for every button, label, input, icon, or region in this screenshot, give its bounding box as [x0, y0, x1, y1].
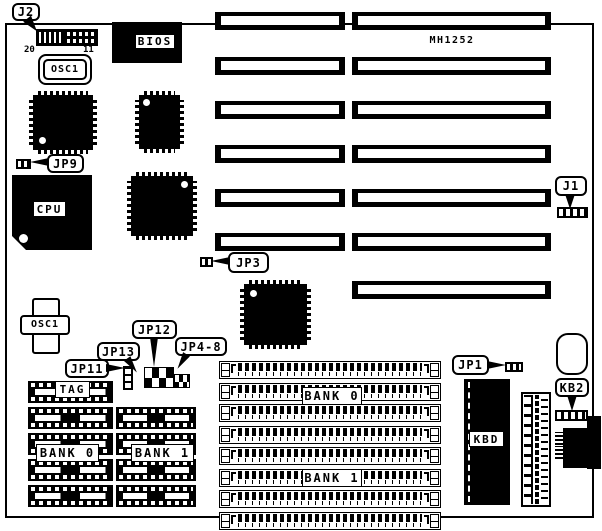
simm-socket-4: [219, 426, 441, 444]
callout-jp1-tail: [487, 361, 506, 369]
simm-socket-1: [219, 361, 441, 379]
kb2-connector: [555, 410, 588, 421]
callout-jp3-label: JP3: [236, 257, 261, 269]
qfp-chip-b: [135, 91, 184, 153]
simm-latch: [424, 493, 429, 502]
simm-latch: [424, 472, 429, 481]
callout-kb2-tail: [567, 395, 577, 411]
j2-header: [36, 29, 98, 46]
isa-slot-right-3: [352, 101, 551, 119]
jp4-8-jumper-block: [174, 374, 190, 388]
memory-chip-bank0-4: [28, 459, 113, 481]
pin-comb: [249, 345, 302, 349]
isa-slot-contact: [221, 237, 339, 246]
io-header-pins-left: [524, 395, 533, 504]
simm-end-clip: [221, 428, 230, 442]
simm-end-clip: [221, 406, 230, 420]
callout-j1: J1: [555, 176, 587, 196]
simm-end-clip: [430, 492, 439, 506]
simm-latch: [231, 515, 236, 524]
simm-latch: [231, 407, 236, 416]
callout-jp11-label: JP11: [71, 363, 104, 375]
callout-kb2-label: KB2: [560, 382, 585, 394]
isa-slot-right-1: [352, 12, 551, 30]
simm-socket-7: [219, 490, 441, 508]
isa-slot-right-7: [352, 281, 551, 299]
simm-latch: [424, 515, 429, 524]
simm-end-clip: [221, 385, 230, 399]
bank0-dip-label: BANK 0: [36, 444, 99, 462]
simm-socket-5: [219, 447, 441, 465]
io-header-pins-right: [541, 395, 548, 504]
isa-slot-right-4: [352, 145, 551, 163]
motherboard-diagram: MH1252 J2 20 11 BIOS OSC1 JP9: [0, 0, 602, 531]
callout-j1-tail: [565, 194, 575, 209]
callout-j1-label: J1: [563, 180, 579, 192]
callout-jp12-tail: [150, 337, 158, 367]
simm-latch: [231, 472, 236, 481]
callout-jp1: JP1: [452, 355, 489, 375]
simm-latch: [424, 450, 429, 459]
pin-comb: [180, 100, 184, 144]
bank1-dip-label: BANK 1: [131, 444, 194, 462]
callout-jp11-tail: [106, 364, 125, 372]
pin-comb: [93, 100, 97, 145]
pin1-dot: [19, 234, 28, 243]
isa-slot-left-1: [215, 12, 345, 30]
memory-chip-bank1-1: [116, 407, 196, 429]
simm-pins: [238, 428, 422, 442]
simm-end-clip: [221, 471, 230, 485]
simm-latch: [231, 364, 236, 373]
isa-slot-contact: [221, 193, 339, 202]
pin-comb: [240, 289, 244, 340]
oscillator-top: OSC1: [38, 54, 92, 85]
isa-slot-contact: [358, 105, 545, 114]
pin-comb: [38, 91, 88, 95]
simm-end-clip: [221, 449, 230, 463]
simm-socket-8: [219, 512, 441, 530]
simm-latch: [231, 386, 236, 395]
isa-slot-right-6: [352, 233, 551, 251]
simm-end-clip: [430, 471, 439, 485]
isa-slot-right-2: [352, 57, 551, 75]
memory-chip-bank0-2: [28, 407, 113, 429]
pin-comb: [144, 149, 175, 153]
bank1-simm-label: BANK 1: [302, 469, 362, 487]
jp1-jumper: [505, 362, 523, 372]
pin1-dot: [39, 137, 46, 144]
io-header-strip: [521, 392, 551, 507]
pin-comb: [136, 236, 188, 240]
isa-slot-left-4: [215, 145, 345, 163]
callout-jp11: JP11: [65, 359, 109, 378]
cpu-label: CPU: [33, 201, 66, 217]
pin-comb: [307, 289, 311, 340]
keyboard-din-connector-edge: [587, 416, 601, 469]
isa-slot-contact: [358, 237, 545, 246]
isa-slot-contact: [221, 16, 339, 25]
oscillator-top-label: OSC1: [43, 59, 87, 80]
isa-slot-left-2: [215, 57, 345, 75]
callout-jp12-label: JP12: [138, 324, 171, 336]
j2-pin20-label: 20: [24, 46, 35, 55]
simm-pins: [238, 449, 422, 463]
pin-comb: [249, 280, 302, 284]
isa-slot-contact: [358, 16, 545, 25]
tag-label: TAG: [55, 381, 90, 398]
callout-jp9: JP9: [47, 154, 84, 173]
isa-slot-contact: [221, 61, 339, 70]
board-model: MH1252: [420, 35, 484, 46]
jp12-13-jumper-block: [144, 367, 174, 388]
simm-latch: [424, 429, 429, 438]
simm-latch: [424, 364, 429, 373]
simm-pins: [238, 406, 422, 420]
isa-slot-contact: [358, 285, 545, 294]
pin-comb: [136, 172, 188, 176]
simm-pins: [238, 492, 422, 506]
pin-comb: [29, 100, 33, 145]
callout-jp3: JP3: [228, 252, 269, 273]
simm-end-clip: [430, 449, 439, 463]
bank0-simm-label: BANK 0: [302, 387, 362, 405]
pin-comb: [144, 91, 175, 95]
isa-slot-left-5: [215, 189, 345, 207]
simm-pins: [238, 514, 422, 528]
oscillator-bottom-label: OSC1: [20, 315, 70, 335]
simm-end-clip: [430, 363, 439, 377]
simm-pins: [238, 363, 422, 377]
simm-end-clip: [221, 363, 230, 377]
isa-slot-contact: [221, 149, 339, 158]
simm-end-clip: [430, 428, 439, 442]
simm-end-clip: [430, 385, 439, 399]
simm-end-clip: [430, 514, 439, 528]
isa-slot-right-5: [352, 189, 551, 207]
simm-end-clip: [430, 406, 439, 420]
pin-comb: [193, 181, 197, 231]
isa-slot-contact: [358, 61, 545, 70]
memory-chip-bank1-3: [116, 459, 196, 481]
din-pin-tab: [555, 446, 564, 459]
pin1-dot: [143, 99, 150, 106]
kbd-label: KBD: [469, 431, 504, 447]
isa-slot-left-3: [215, 101, 345, 119]
pin1-dot: [250, 290, 257, 297]
bios-label: BIOS: [135, 34, 175, 49]
isa-slot-contact: [358, 149, 545, 158]
qfp-chip-d: [240, 280, 311, 349]
simm-latch: [231, 450, 236, 459]
callout-jp4-8-label: JP4-8: [180, 341, 221, 353]
din-pin-tab: [555, 432, 564, 445]
isa-slot-contact: [358, 193, 545, 202]
callout-jp9-label: JP9: [53, 158, 78, 170]
isa-slot-left-6: [215, 233, 345, 251]
simm-latch: [424, 386, 429, 395]
io-header-divider: [535, 395, 539, 504]
simm-latch: [424, 407, 429, 416]
battery: [556, 333, 588, 375]
memory-chip-bank1-4: [116, 485, 196, 507]
simm-end-clip: [221, 492, 230, 506]
isa-slot-contact: [221, 105, 339, 114]
pin-comb: [127, 181, 131, 231]
simm-end-clip: [221, 514, 230, 528]
jp9-jumper: [16, 159, 31, 169]
qfp-chip-a: [29, 91, 97, 154]
pin1-dot: [181, 181, 188, 188]
callout-jp1-label: JP1: [458, 359, 483, 371]
simm-latch: [231, 429, 236, 438]
simm-latch: [231, 493, 236, 502]
simm-socket-3: [219, 404, 441, 422]
memory-chip-bank0-5: [28, 485, 113, 507]
pin-comb: [135, 100, 139, 144]
qfp-chip-c: [127, 172, 197, 240]
